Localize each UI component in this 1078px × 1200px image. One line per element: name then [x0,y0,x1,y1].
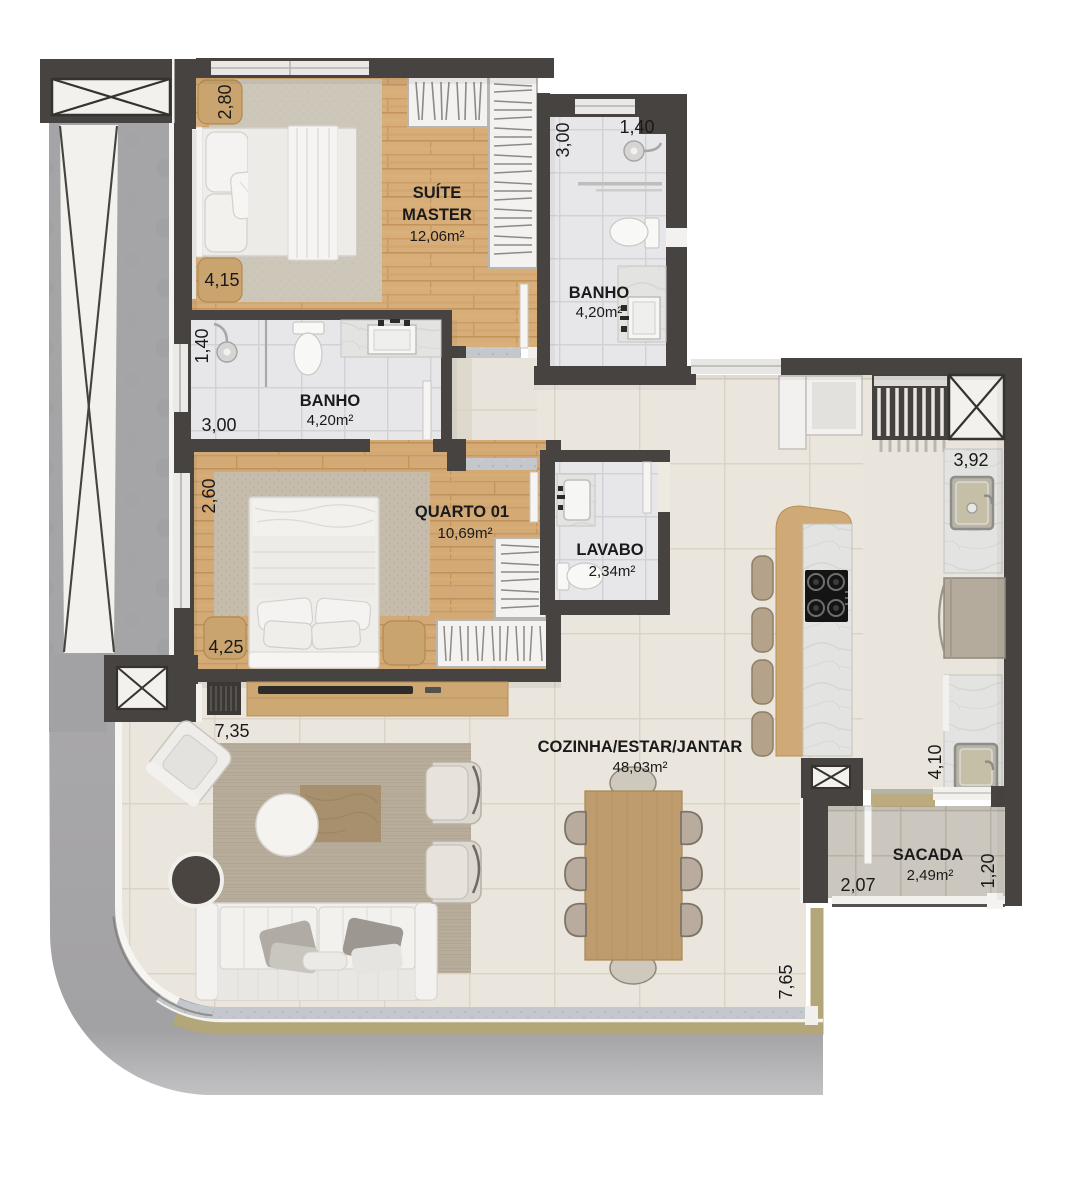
svg-text:7,65: 7,65 [776,964,796,999]
svg-text:4,20m²: 4,20m² [576,304,623,321]
svg-text:2,80: 2,80 [215,84,235,119]
svg-text:2,34m²: 2,34m² [589,563,636,580]
svg-text:1,40: 1,40 [192,328,212,363]
svg-text:1,20: 1,20 [978,853,998,888]
svg-text:2,07: 2,07 [840,875,875,895]
svg-text:12,06m²: 12,06m² [409,228,464,245]
svg-text:7,35: 7,35 [214,721,249,741]
svg-text:2,49m²: 2,49m² [907,867,954,884]
svg-text:48,03m²: 48,03m² [612,759,667,776]
svg-text:3,00: 3,00 [201,415,236,435]
svg-text:2,60: 2,60 [199,478,219,513]
svg-text:COZINHA/ESTAR/JANTAR: COZINHA/ESTAR/JANTAR [538,738,743,756]
svg-text:MASTER: MASTER [402,206,472,224]
svg-text:3,00: 3,00 [553,122,573,157]
svg-text:4,20m²: 4,20m² [307,412,354,429]
svg-text:BANHO: BANHO [569,284,630,302]
svg-text:1,40: 1,40 [619,117,654,137]
svg-text:LAVABO: LAVABO [576,541,643,559]
svg-text:4,10: 4,10 [925,744,945,779]
svg-text:QUARTO 01: QUARTO 01 [415,503,509,521]
svg-text:4,25: 4,25 [208,637,243,657]
svg-text:BANHO: BANHO [300,392,361,410]
svg-text:4,15: 4,15 [204,270,239,290]
svg-text:10,69m²: 10,69m² [437,525,492,542]
svg-text:3,92: 3,92 [953,450,988,470]
svg-text:SACADA: SACADA [893,846,964,864]
svg-text:SUÍTE: SUÍTE [413,183,462,202]
